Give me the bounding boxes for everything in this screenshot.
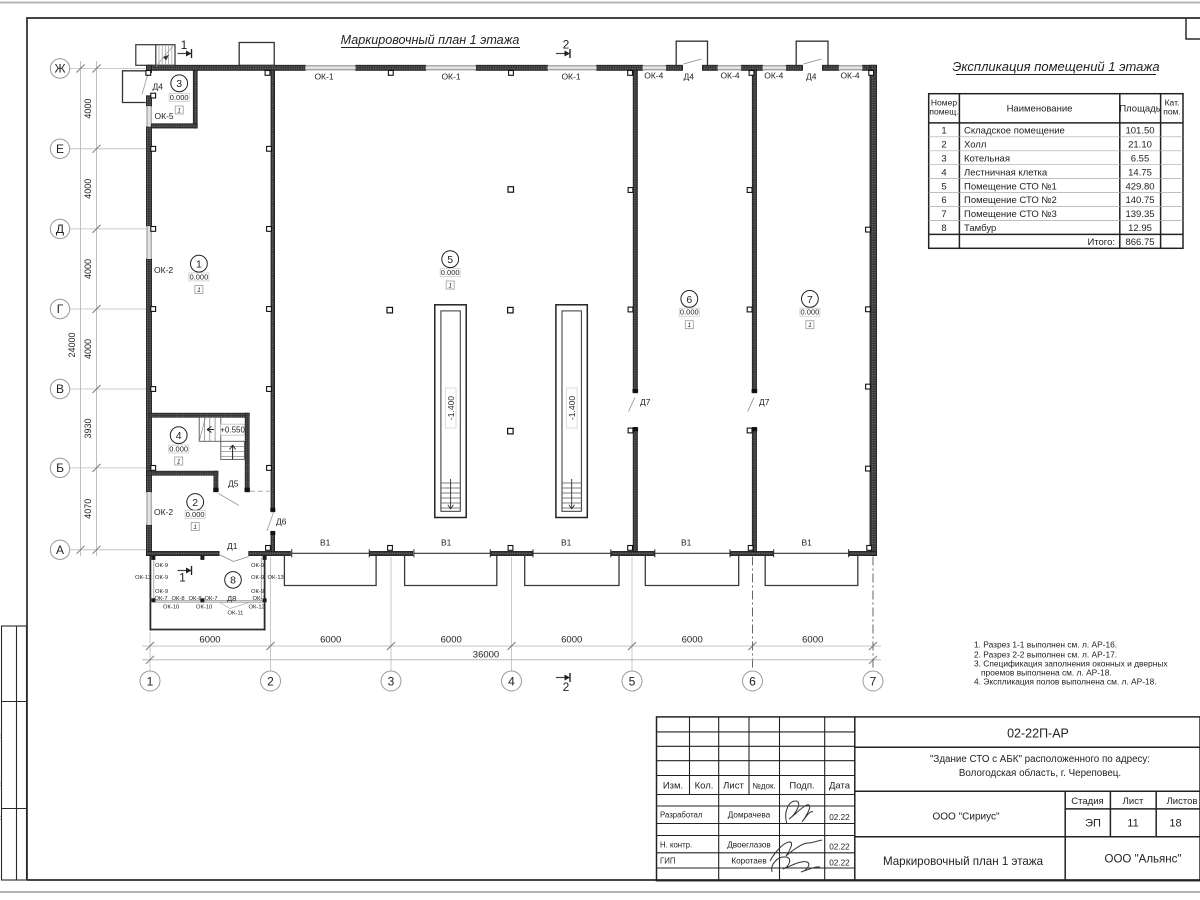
svg-text:6: 6 <box>941 195 946 206</box>
svg-text:ООО "Сириус": ООО "Сириус" <box>932 812 1000 823</box>
svg-text:2: 2 <box>192 497 198 509</box>
svg-text:4. Экспликация полов выполнена: 4. Экспликация полов выполнена см. л. АР… <box>974 677 1157 687</box>
svg-text:А: А <box>56 543 64 557</box>
svg-text:1: 1 <box>177 108 181 115</box>
svg-text:Листов: Листов <box>1167 796 1198 807</box>
svg-text:Тамбур: Тамбур <box>964 223 996 234</box>
svg-text:"Здание СТО с АБК" расположенн: "Здание СТО с АБК" расположенного по адр… <box>930 754 1150 765</box>
svg-text:ОК-8: ОК-8 <box>189 596 202 602</box>
svg-text:7: 7 <box>941 209 946 220</box>
svg-text:Изм.: Изм. <box>663 781 683 792</box>
svg-text:Д1: Д1 <box>227 541 238 551</box>
svg-text:02.22: 02.22 <box>829 859 850 868</box>
svg-text:Итого:: Итого: <box>1087 237 1115 248</box>
svg-text:4000: 4000 <box>83 339 93 359</box>
svg-text:ОК-2: ОК-2 <box>154 507 173 517</box>
svg-text:4000: 4000 <box>83 259 93 279</box>
svg-text:3: 3 <box>388 674 395 688</box>
svg-text:Помещение СТО №2: Помещение СТО №2 <box>964 195 1057 206</box>
svg-text:Лист: Лист <box>723 781 744 792</box>
svg-text:Котельная: Котельная <box>964 153 1010 164</box>
svg-text:Д4: Д4 <box>684 72 695 82</box>
svg-text:0.000: 0.000 <box>186 510 205 519</box>
svg-text:1: 1 <box>147 674 154 688</box>
svg-text:6000: 6000 <box>682 635 703 646</box>
svg-text:3: 3 <box>176 78 182 90</box>
svg-text:Д4: Д4 <box>153 82 164 92</box>
svg-text:2: 2 <box>267 674 274 688</box>
svg-text:02.22: 02.22 <box>829 813 850 822</box>
svg-text:ОК-1: ОК-1 <box>441 72 460 82</box>
svg-text:1: 1 <box>941 126 946 137</box>
svg-text:ОК-11: ОК-11 <box>228 610 244 616</box>
svg-text:ГИП: ГИП <box>660 857 675 866</box>
svg-text:4: 4 <box>941 167 946 178</box>
svg-text:8: 8 <box>230 575 236 587</box>
svg-text:1: 1 <box>179 571 186 585</box>
svg-text:ОК-4: ОК-4 <box>720 71 739 81</box>
svg-text:В1: В1 <box>802 538 813 548</box>
svg-text:Д4: Д4 <box>806 72 817 82</box>
svg-text:21.10: 21.10 <box>1128 140 1152 151</box>
svg-text:36000: 36000 <box>473 650 499 661</box>
svg-text:0.000: 0.000 <box>190 272 209 281</box>
svg-text:4000: 4000 <box>83 99 93 119</box>
svg-text:1: 1 <box>196 259 202 271</box>
svg-text:Маркировочный план 1 этажа: Маркировочный план 1 этажа <box>883 855 1044 868</box>
svg-text:7: 7 <box>870 674 877 688</box>
svg-text:139.35: 139.35 <box>1125 209 1154 220</box>
svg-text:18: 18 <box>1169 818 1181 830</box>
svg-text:6000: 6000 <box>561 635 582 646</box>
svg-text:0.000: 0.000 <box>441 268 460 277</box>
svg-text:6000: 6000 <box>802 635 823 646</box>
svg-text:Домрачева: Домрачева <box>728 811 771 820</box>
svg-text:Разработал: Разработал <box>660 811 703 820</box>
svg-text:№док.: №док. <box>752 782 775 791</box>
svg-text:6: 6 <box>749 674 756 688</box>
svg-text:Б: Б <box>56 461 64 475</box>
svg-text:14.75: 14.75 <box>1128 167 1152 178</box>
svg-text:8: 8 <box>941 223 946 234</box>
svg-text:Лист: Лист <box>1123 796 1144 807</box>
svg-text:помещ.: помещ. <box>929 107 958 117</box>
svg-text:02-22П-АР: 02-22П-АР <box>1007 727 1069 741</box>
svg-text:В1: В1 <box>681 538 692 548</box>
svg-text:4: 4 <box>176 430 182 442</box>
svg-text:Наименование: Наименование <box>1007 104 1073 115</box>
svg-text:Коротаев: Коротаев <box>731 857 766 866</box>
svg-text:ОК-12: ОК-12 <box>249 605 265 611</box>
svg-text:ОК-9: ОК-9 <box>251 575 264 581</box>
svg-text:ОК-7: ОК-7 <box>205 596 218 602</box>
svg-text:12.95: 12.95 <box>1128 223 1152 234</box>
svg-text:1: 1 <box>687 322 691 329</box>
svg-text:866.75: 866.75 <box>1125 237 1154 248</box>
svg-text:1: 1 <box>181 38 188 52</box>
svg-text:Стадия: Стадия <box>1071 796 1103 807</box>
svg-text:ООО "Альянс": ООО "Альянс" <box>1105 854 1182 866</box>
svg-text:ОК-9: ОК-9 <box>155 575 168 581</box>
svg-text:101.50: 101.50 <box>1125 126 1154 137</box>
svg-text:Д6: Д6 <box>276 517 287 527</box>
svg-text:ОК-4: ОК-4 <box>644 71 663 81</box>
svg-text:+0.550: +0.550 <box>220 425 245 434</box>
svg-text:В1: В1 <box>320 538 331 548</box>
svg-text:-1.400: -1.400 <box>567 396 577 420</box>
svg-text:6000: 6000 <box>199 635 220 646</box>
svg-text:Д7: Д7 <box>759 397 770 407</box>
svg-text:3930: 3930 <box>83 418 93 438</box>
svg-text:ОК-13: ОК-13 <box>135 575 151 581</box>
svg-text:В1: В1 <box>561 538 572 548</box>
svg-text:4: 4 <box>508 674 515 688</box>
svg-text:ОК-1: ОК-1 <box>314 72 333 82</box>
svg-text:ОК-9: ОК-9 <box>251 563 264 569</box>
svg-text:В: В <box>56 382 64 396</box>
svg-text:Холл: Холл <box>964 140 986 151</box>
svg-text:ЭП: ЭП <box>1085 818 1101 830</box>
svg-text:ОК-9: ОК-9 <box>155 589 168 595</box>
svg-text:Е: Е <box>56 142 64 156</box>
svg-text:Г: Г <box>57 302 64 316</box>
svg-text:Складское помещение: Складское помещение <box>964 126 1065 137</box>
svg-text:Помещение СТО №1: Помещение СТО №1 <box>964 181 1057 192</box>
svg-text:Экспликация помещений 1 этажа: Экспликация помещений 1 этажа <box>952 59 1159 74</box>
svg-text:140.75: 140.75 <box>1125 195 1154 206</box>
svg-text:429.80: 429.80 <box>1125 181 1154 192</box>
svg-text:11: 11 <box>1127 818 1138 830</box>
svg-text:ОК-1: ОК-1 <box>561 72 580 82</box>
svg-text:6: 6 <box>686 294 692 306</box>
svg-text:Д7: Д7 <box>640 397 651 407</box>
svg-text:0.000: 0.000 <box>169 445 188 454</box>
svg-text:ОК-8: ОК-8 <box>172 596 185 602</box>
svg-text:3: 3 <box>941 153 946 164</box>
svg-text:02.22: 02.22 <box>829 843 850 852</box>
svg-text:ОК-4: ОК-4 <box>764 71 783 81</box>
svg-text:Подп.: Подп. <box>789 781 814 792</box>
svg-text:6000: 6000 <box>441 635 462 646</box>
svg-text:2: 2 <box>941 140 946 151</box>
svg-text:6000: 6000 <box>320 635 341 646</box>
svg-text:Дата: Дата <box>829 781 851 792</box>
svg-text:1: 1 <box>193 524 197 531</box>
svg-text:Вологодская область, г. Черепо: Вологодская область, г. Череповец. <box>959 768 1121 779</box>
svg-text:Площадь: Площадь <box>1119 104 1160 115</box>
svg-text:4070: 4070 <box>83 499 93 519</box>
svg-text:ОК-10: ОК-10 <box>163 605 179 611</box>
svg-text:ОК-4: ОК-4 <box>840 71 859 81</box>
svg-text:Помещение СТО №3: Помещение СТО №3 <box>964 209 1057 220</box>
svg-text:ОК-7: ОК-7 <box>155 596 168 602</box>
svg-text:В1: В1 <box>441 538 452 548</box>
svg-text:Маркировочный план 1 этажа: Маркировочный план 1 этажа <box>341 33 520 47</box>
svg-text:2: 2 <box>563 680 570 694</box>
svg-text:ОК-7: ОК-7 <box>253 596 266 602</box>
svg-text:Д5: Д5 <box>228 479 239 489</box>
svg-text:0.000: 0.000 <box>680 308 699 317</box>
svg-text:-1.400: -1.400 <box>446 396 456 420</box>
svg-text:Н. контр.: Н. контр. <box>660 841 692 850</box>
svg-text:ОК-9: ОК-9 <box>251 589 264 595</box>
svg-text:Кол.: Кол. <box>695 781 714 792</box>
svg-text:0.000: 0.000 <box>801 308 820 317</box>
svg-text:Лестничная клетка: Лестничная клетка <box>964 167 1048 178</box>
svg-text:ОК-13: ОК-13 <box>268 575 284 581</box>
svg-text:ОК-10: ОК-10 <box>196 605 212 611</box>
svg-text:1. Разрез 1-1 выполнен см. л.: 1. Разрез 1-1 выполнен см. л. АР-16. <box>974 640 1117 650</box>
svg-text:Д8: Д8 <box>227 594 236 603</box>
svg-text:1: 1 <box>448 283 452 290</box>
svg-text:1: 1 <box>197 287 201 294</box>
svg-text:5: 5 <box>941 181 946 192</box>
svg-text:ОК-5: ОК-5 <box>155 111 174 121</box>
svg-text:5: 5 <box>629 674 636 688</box>
svg-text:пом.: пом. <box>1163 107 1181 117</box>
svg-text:ОК-2: ОК-2 <box>154 265 173 275</box>
svg-text:7: 7 <box>807 294 813 306</box>
svg-text:24000: 24000 <box>67 332 77 357</box>
svg-text:2: 2 <box>563 38 570 52</box>
svg-text:Двоеглазов: Двоеглазов <box>727 841 771 850</box>
svg-text:5: 5 <box>447 254 453 266</box>
svg-text:4000: 4000 <box>83 179 93 199</box>
svg-text:6.55: 6.55 <box>1131 153 1150 164</box>
svg-text:0.000: 0.000 <box>170 93 189 102</box>
svg-text:Ж: Ж <box>54 62 65 76</box>
svg-text:1: 1 <box>808 322 812 329</box>
svg-text:Д: Д <box>56 222 64 236</box>
svg-text:1: 1 <box>177 459 181 466</box>
svg-text:ОК-9: ОК-9 <box>155 563 168 569</box>
